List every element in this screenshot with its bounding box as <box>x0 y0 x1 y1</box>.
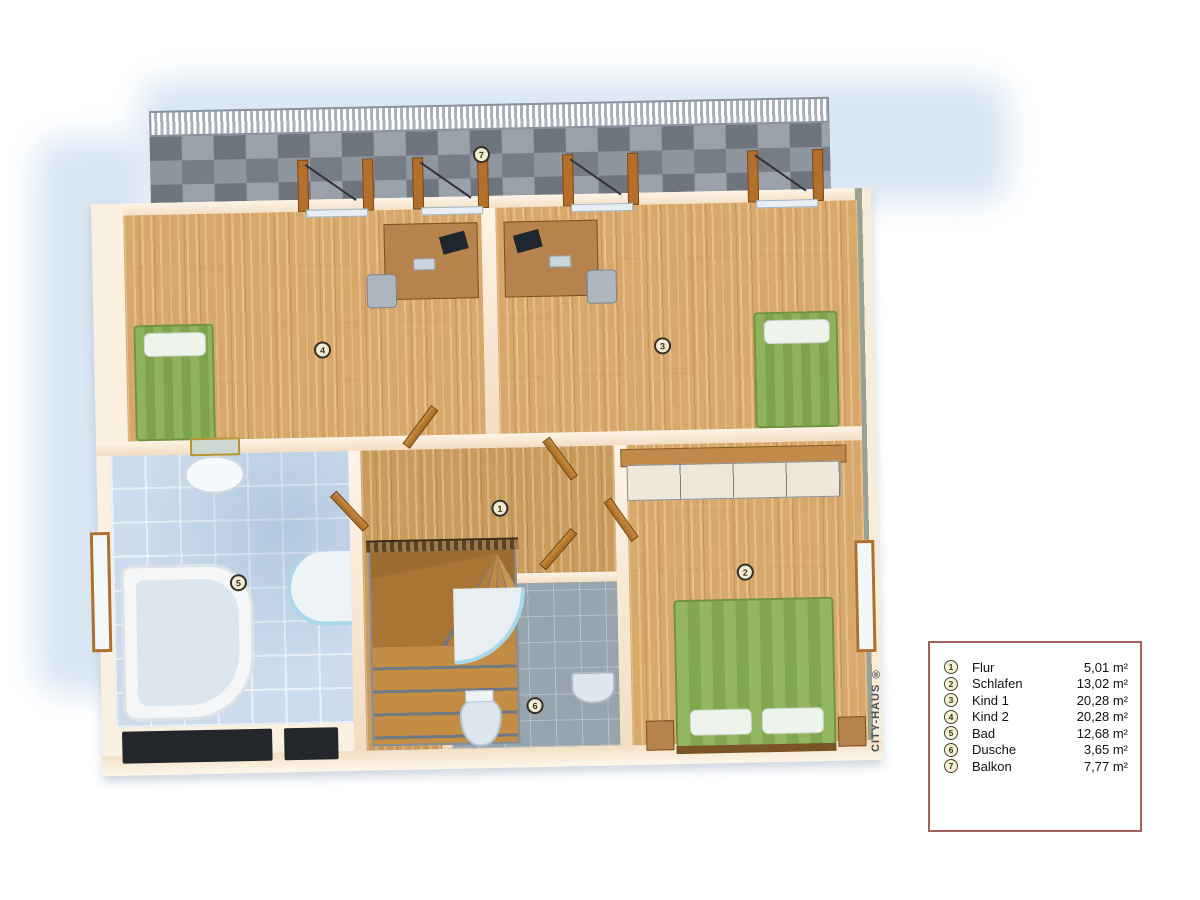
legend-row-kind2: 4 Kind 2 20,28 m² <box>944 709 1128 725</box>
floor-plan: 1 2 3 4 5 6 7 <box>81 88 895 795</box>
glass-door-leaf <box>570 158 622 195</box>
floor-void <box>284 727 339 760</box>
bed-kind1 <box>753 311 839 429</box>
keyboard-icon <box>549 255 571 267</box>
door-post <box>477 156 489 208</box>
legend-row-balkon: 7 Balkon 7,77 m² <box>944 758 1128 774</box>
window-left-bad <box>90 532 113 652</box>
toilet-tank <box>465 690 493 703</box>
balcony-door-icon <box>562 151 639 215</box>
wardrobe <box>626 445 841 501</box>
wardrobe-doors <box>627 461 842 501</box>
legend-row-bad: 5 Bad 12,68 m² <box>944 725 1128 741</box>
computer-monitor-icon <box>513 229 543 253</box>
legend-room-name: Bad <box>972 726 995 741</box>
legend-box: 1 Flur 5,01 m² 2 Schlafen 13,02 m² 3 Kin… <box>928 641 1142 832</box>
legend-number-badge: 3 <box>944 693 958 707</box>
legend-number-badge: 5 <box>944 726 958 740</box>
legend-room-area: 5,01 m² <box>1084 660 1128 675</box>
legend-row-schlafen: 2 Schlafen 13,02 m² <box>944 676 1128 692</box>
legend-room-area: 7,77 m² <box>1084 759 1128 774</box>
pillow <box>762 707 824 734</box>
legend-room-name: Schlafen <box>972 676 1023 691</box>
legend-room-area: 20,28 m² <box>1077 693 1128 708</box>
legend-room-name: Dusche <box>972 742 1016 757</box>
pillow <box>764 319 830 344</box>
door-sill <box>306 208 368 217</box>
legend-room-area: 20,28 m² <box>1077 709 1128 724</box>
glass-door-leaf <box>755 155 807 192</box>
nightstand <box>646 720 675 751</box>
city-haus-watermark: CITY-HAUS ® <box>870 648 894 752</box>
door-sill <box>421 206 483 215</box>
keyboard-icon <box>413 258 435 270</box>
legend-room-name: Flur <box>972 660 994 675</box>
legend-number-badge: 7 <box>944 759 958 773</box>
window-right-schlafen <box>854 540 876 652</box>
floor-void <box>122 729 273 764</box>
legend-row-dusche: 6 Dusche 3,65 m² <box>944 742 1128 758</box>
legend-room-name: Balkon <box>972 759 1012 774</box>
chair-kind1 <box>586 269 617 304</box>
glass-door-leaf <box>420 162 472 199</box>
door-post <box>812 149 824 201</box>
door-post <box>362 158 374 210</box>
legend-room-area: 12,68 m² <box>1077 726 1128 741</box>
legend-row-kind1: 3 Kind 1 20,28 m² <box>944 692 1128 708</box>
legend-room-name: Kind 2 <box>972 709 1009 724</box>
chair-kind2 <box>366 274 397 309</box>
pillow <box>143 332 206 357</box>
legend-room-name: Kind 1 <box>972 693 1009 708</box>
pillow <box>690 709 752 736</box>
legend-number-badge: 1 <box>944 660 958 674</box>
legend-number-badge: 2 <box>944 677 958 691</box>
mirror-icon <box>190 437 240 456</box>
balcony-door-icon <box>412 154 489 218</box>
floorplan-page: 1 2 3 4 5 6 7 CITY-HAUS ® 1 Flur 5,01 m²… <box>0 0 1200 900</box>
legend-number-badge: 6 <box>944 743 958 757</box>
desk-kind2 <box>383 222 479 300</box>
double-bed-schlafen <box>673 597 836 748</box>
balcony-door-icon <box>747 147 824 211</box>
legend-room-area: 13,02 m² <box>1077 676 1128 691</box>
tub-basin <box>136 578 241 706</box>
desk-kind1 <box>503 220 599 298</box>
door-sill <box>571 203 633 212</box>
computer-monitor-icon <box>439 231 469 255</box>
balcony-door-icon <box>297 156 374 220</box>
legend-room-area: 3,65 m² <box>1084 742 1128 757</box>
bed-kind2 <box>134 324 216 442</box>
legend-number-badge: 4 <box>944 710 958 724</box>
door-post <box>627 153 639 205</box>
door-sill <box>756 199 818 208</box>
legend-row-flur: 1 Flur 5,01 m² <box>944 659 1128 675</box>
nightstand <box>838 716 867 747</box>
glass-door-leaf <box>305 164 357 201</box>
